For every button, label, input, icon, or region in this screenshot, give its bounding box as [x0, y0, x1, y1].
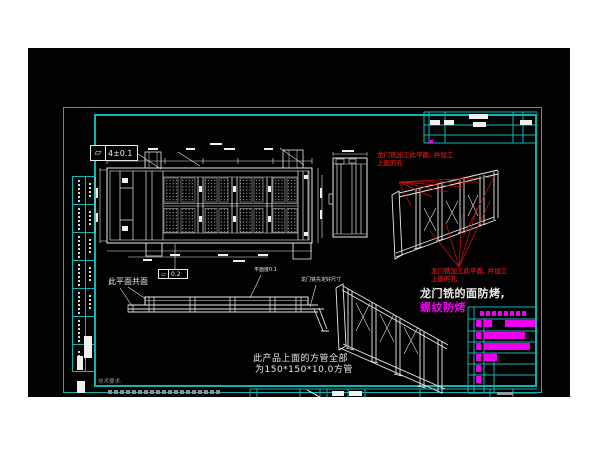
- tech-requirements-title: 技术要求:: [98, 379, 122, 386]
- tolerance-value: 0.2: [169, 270, 183, 278]
- parts-table-mark: [476, 343, 481, 350]
- parts-table-header-text: [480, 311, 527, 316]
- parts-table-bar: [484, 343, 530, 350]
- gantry-fit-note: 龙门铣先定好尺寸: [301, 277, 341, 283]
- parts-table-mark: [476, 320, 481, 327]
- coplanar-note: 此平面共面: [108, 277, 148, 286]
- parts-table-mark: [476, 376, 481, 383]
- parts-table-bar: [484, 354, 497, 361]
- plan-view: [107, 150, 312, 259]
- plan-view-hole-panels: [164, 178, 297, 233]
- tube-spec-line1: 此产品上面的方管全部: [253, 354, 348, 365]
- flatness-symbol-icon: ▱: [91, 146, 106, 160]
- title-block-magenta-dot: [430, 140, 433, 143]
- parts-table-mark: [476, 365, 481, 372]
- parts-table-bar: [505, 320, 535, 327]
- tech-requirements-body-masked: [108, 390, 221, 394]
- front-view: [120, 275, 329, 331]
- tolerance-frame-2: ▱ 0.2: [158, 269, 188, 279]
- parts-table-bar: [484, 320, 492, 327]
- side-view: [329, 152, 367, 237]
- iso-view-top: [392, 170, 498, 259]
- parts-table-mark: [476, 354, 481, 361]
- page: ▱ 4±0.1 ▱ 0.2 龙门铣加工此平面, 并加工 上面的孔 龙门铣加工此平…: [0, 0, 600, 450]
- parts-table-mark: [476, 332, 481, 339]
- tube-spec-line2: 为150*150*10.0方管: [255, 365, 353, 376]
- red-machining-note-1: 龙门铣加工此平面, 并加工 上面的孔: [377, 151, 453, 167]
- tolerance-value: 4±0.1: [106, 146, 135, 160]
- parts-table-bar: [484, 332, 525, 339]
- bake-protect-note-line1: 龙门铣的面防烤,: [420, 287, 505, 300]
- red-machining-note-2: 龙门铣加工此平面, 并加工 上面的孔: [431, 267, 507, 283]
- bake-protect-note-line2: 螺纹防烤: [420, 301, 466, 314]
- cad-drawing-viewport: ▱ 4±0.1 ▱ 0.2 龙门铣加工此平面, 并加工 上面的孔 龙门铣加工此平…: [28, 48, 570, 397]
- flatness-symbol-icon: ▱: [159, 270, 169, 278]
- tolerance-frame-1: ▱ 4±0.1: [90, 145, 138, 161]
- flatness-note: 平面度0.1: [254, 267, 277, 273]
